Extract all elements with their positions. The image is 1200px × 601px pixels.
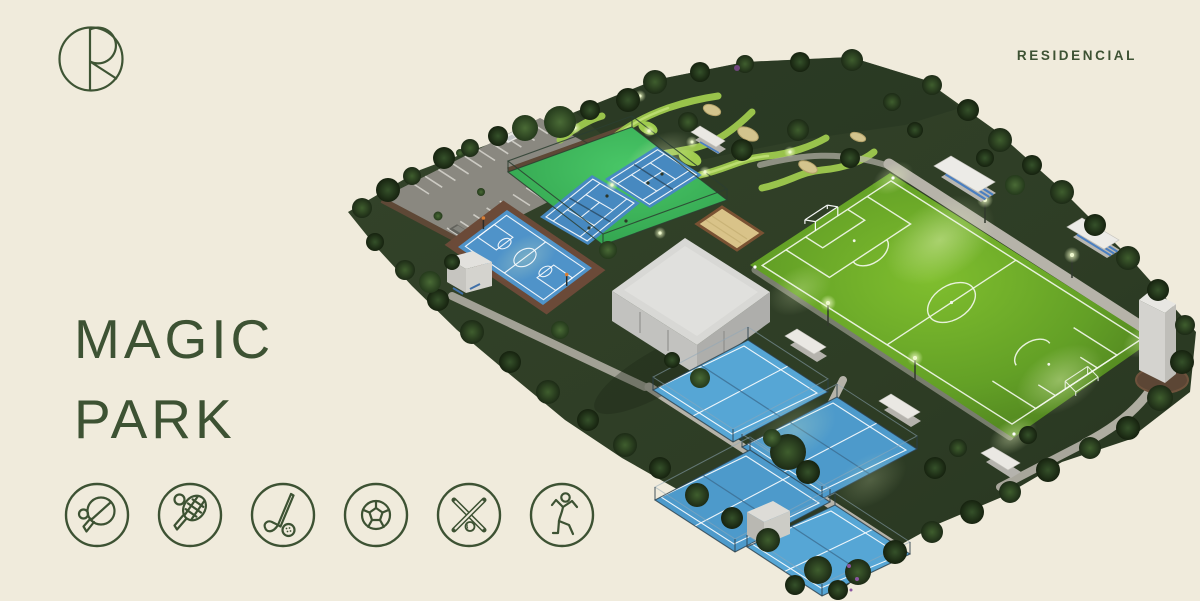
title-line-2: PARK (74, 380, 274, 460)
table-tennis-icon (63, 481, 131, 549)
brand-logo (57, 25, 125, 98)
title-line-1: MAGIC (74, 300, 274, 380)
golf-icon (249, 481, 317, 549)
gymnastics-icon (528, 481, 596, 549)
residencial-wordmark: RESIDENCIAL (1017, 48, 1137, 63)
page-title: MAGIC PARK (74, 300, 274, 460)
page: RESIDENCIAL MAGIC PARK (0, 0, 1200, 601)
amenity-icons (63, 481, 596, 549)
soccer-icon (342, 481, 410, 549)
tennis-icon (156, 481, 224, 549)
r-monogram-icon (57, 25, 125, 93)
baseball-icon (435, 481, 503, 549)
